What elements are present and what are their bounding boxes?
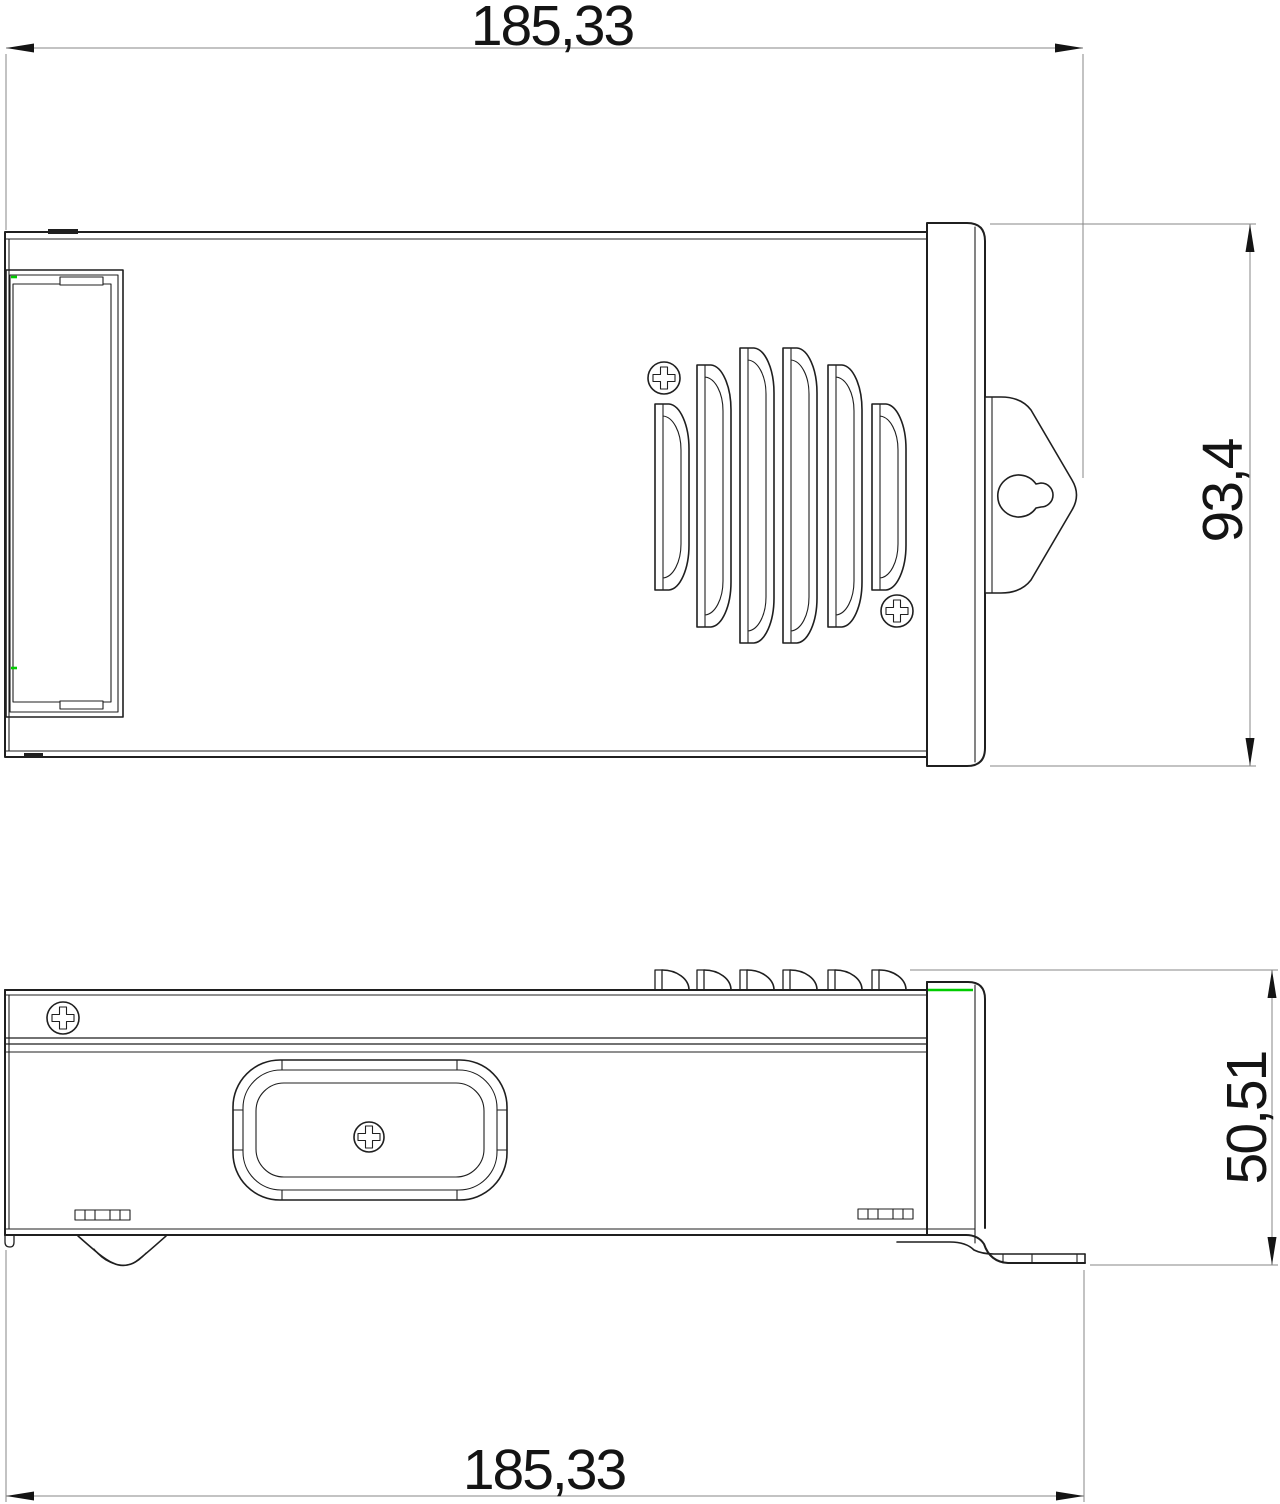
vent-slot-row-right	[858, 1209, 913, 1219]
foot-bump	[78, 1236, 166, 1265]
vent-louvers	[655, 348, 906, 643]
mounting-bracket-foot	[897, 1235, 1085, 1263]
side-body	[5, 990, 975, 1247]
technical-drawing: 185,33 93,4	[0, 0, 1280, 1504]
louver	[828, 365, 862, 627]
left-bottom-tab	[5, 1235, 14, 1247]
vent-fins	[655, 970, 906, 990]
terminal-frame	[6, 270, 123, 717]
vent-slot-row-left	[75, 1210, 130, 1220]
louver	[783, 348, 817, 643]
dimension-label-overall-height: 93,4	[1191, 438, 1255, 542]
phillips-screw-icon	[648, 362, 680, 394]
top-view	[5, 223, 1077, 766]
technical-drawing-page: 185,33 93,4	[0, 0, 1280, 1504]
dimension-label-top-width: 185,33	[471, 0, 634, 58]
fin	[740, 970, 774, 990]
phillips-screw-icon	[354, 1122, 384, 1152]
louver	[697, 365, 731, 627]
phillips-screw-icon	[881, 595, 913, 627]
edge-mark-bottom	[24, 753, 43, 758]
fin	[783, 970, 817, 990]
louver	[740, 348, 774, 643]
end-cap	[927, 223, 985, 766]
keyhole-mounting-tab	[985, 397, 1077, 593]
fin	[872, 970, 906, 990]
louver	[655, 404, 689, 590]
fin	[828, 970, 862, 990]
side-end-cap	[927, 982, 985, 1243]
frame-tab-bottom	[60, 701, 103, 709]
louver	[872, 404, 906, 590]
side-view	[5, 970, 1085, 1265]
dimension-label-bottom-width: 185,33	[463, 1438, 626, 1502]
fin	[655, 970, 689, 990]
dimension-label-side-height: 50,51	[1215, 1052, 1279, 1185]
embossed-boss	[233, 1060, 507, 1200]
frame-tab-top	[60, 277, 103, 285]
dimension-side-height: 50,51	[910, 970, 1279, 1265]
fin	[697, 970, 731, 990]
phillips-screw-icon	[47, 1002, 79, 1034]
edge-mark-top	[48, 229, 78, 234]
dimension-bottom-width: 185,33	[6, 1250, 1084, 1502]
